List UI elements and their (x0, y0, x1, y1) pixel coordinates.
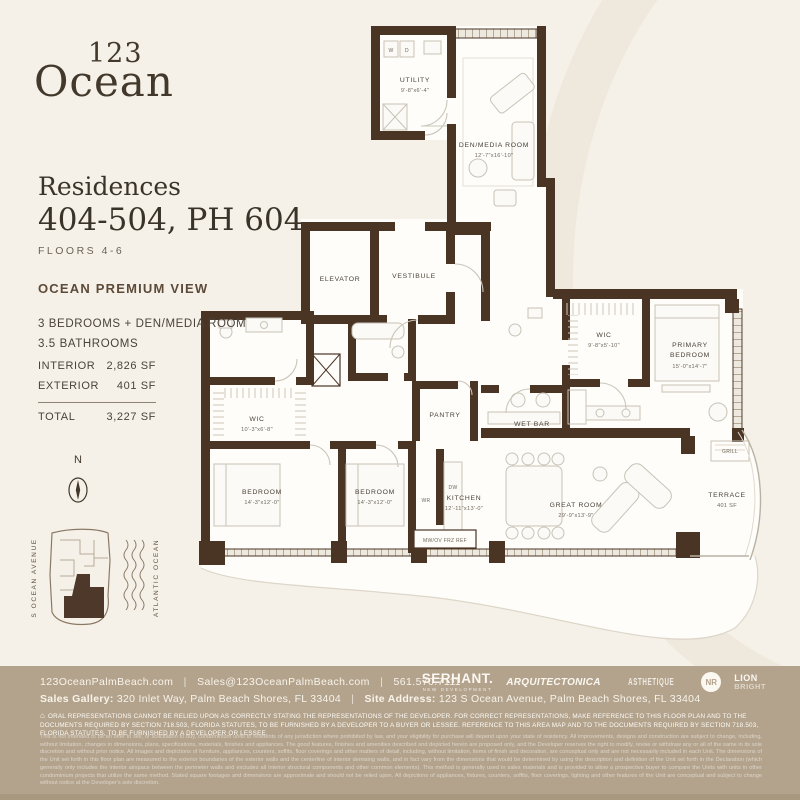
room-label-elevator: ELEVATOR (320, 276, 361, 283)
view-type-label: OCEAN PREMIUM VIEW (38, 281, 208, 296)
serhant-logo: SERHANT. NEW DEVELOPMENT (422, 672, 494, 692)
room-label-bedroom1: BEDROOM (242, 489, 282, 496)
site-map-street-label: S OCEAN AVENUE (31, 538, 38, 617)
partner-logos: SERHANT. NEW DEVELOPMENT ARQUITECTONICA … (422, 672, 766, 692)
footer-contact-line: 123OceanPalmBeach.com | Sales@123OceanPa… (40, 676, 461, 688)
footer: 123OceanPalmBeach.com | Sales@123OceanPa… (0, 666, 800, 800)
floors-label: FLOORS 4-6 (38, 245, 303, 257)
label-wr: WR (422, 498, 431, 504)
room-dims-wic-primary: 9'-8"x5'-10" (588, 343, 620, 349)
feature-bedrooms: 3 BEDROOMS + DEN/MEDIA ROOM (38, 314, 246, 334)
room-dims-utility: 9'-8"x6'-4" (401, 88, 429, 94)
ocean-waves-icon (124, 540, 144, 610)
room-label-great-room: GREAT ROOM (550, 502, 603, 509)
table-row: INTERIOR 2,826 SF (38, 360, 156, 372)
equal-housing-icon: ⌂ (40, 711, 45, 720)
sales-gallery-value: 320 Inlet Way, Palm Beach Shores, FL 334… (117, 693, 341, 705)
site-map-ocean-label: ATLANTIC OCEAN (153, 539, 160, 617)
room-label-primary-2: BEDROOM (670, 352, 710, 359)
feature-bathrooms: 3.5 BATHROOMS (38, 334, 246, 354)
area-value-exterior: 401 SF (117, 380, 156, 392)
label-appliance-row: MW/OV FRZ REF (423, 538, 467, 544)
label-dryer: D (405, 48, 409, 54)
room-label-primary-1: PRIMARY (672, 342, 708, 349)
room-label-pantry: PANTRY (429, 412, 460, 419)
residences-label: Residences (38, 172, 303, 201)
room-dims-primary: 15'-0"x14'-7" (672, 364, 707, 370)
site-address-value: 123 S Ocean Avenue, Palm Beach Shores, F… (439, 693, 701, 705)
area-value-interior: 2,826 SF (107, 360, 156, 372)
room-label-terrace: TERRACE (708, 492, 745, 499)
room-dims-wic-left: 10'-3"x6'-8" (241, 427, 273, 433)
sales-gallery-label: Sales Gallery: (40, 693, 114, 705)
room-dims-kitchen: 12'-11"x13'-0" (445, 506, 483, 512)
separator: | (351, 693, 354, 705)
room-label-den: DEN/MEDIA ROOM (459, 142, 529, 149)
serhant-subtext: NEW DEVELOPMENT (422, 688, 494, 693)
room-label-wet-bar: WET BAR (514, 421, 550, 428)
separator: | (184, 676, 187, 688)
area-table: INTERIOR 2,826 SF EXTERIOR 401 SF TOTAL … (38, 360, 156, 431)
table-row-total: TOTAL 3,227 SF (38, 402, 156, 423)
site-address-label: Site Address: (364, 693, 435, 705)
features-block: 3 BEDROOMS + DEN/MEDIA ROOM 3.5 BATHROOM… (38, 314, 246, 354)
room-label-utility: UTILITY (400, 77, 430, 84)
label-grill: GRILL (722, 449, 738, 455)
room-dims-terrace: 401 SF (717, 503, 737, 509)
area-value-total: 3,227 SF (107, 411, 156, 423)
svg-text:N: N (74, 454, 82, 466)
label-dishwasher: DW (449, 485, 458, 491)
legal-fine-print: This is not intended to be an offer to s… (40, 734, 762, 788)
table-row: EXTERIOR 401 SF (38, 380, 156, 392)
footer-email-link[interactable]: Sales@123OceanPalmBeach.com (197, 676, 370, 688)
page-title-units: 404-504, PH 604 (38, 202, 303, 238)
compass-icon: N (69, 454, 87, 502)
room-label-vestibule: VESTIBULE (392, 273, 436, 280)
label-washer: W (388, 48, 393, 54)
room-label-bedroom2: BEDROOM (355, 489, 395, 496)
room-dims-bedroom1: 14'-3"x12'-0" (244, 500, 279, 506)
room-dims-den: 12'-7"x16'-10" (475, 153, 514, 159)
site-map-unit-highlight (64, 574, 104, 618)
room-label-kitchen: KITCHEN (447, 495, 482, 502)
room-dims-bedroom2: 14'-3"x12'-0" (357, 500, 392, 506)
asthetique-logo: ASTHETIQUE (628, 677, 674, 688)
room-dims-great-room: 29'-9"x13'-9" (558, 513, 593, 519)
arquitectonica-logo: ARQUITECTONICA (506, 677, 601, 688)
area-label-interior: INTERIOR (38, 360, 95, 372)
serhant-wordmark: SERHANT. (422, 672, 494, 686)
brand-logo: 123 Ocean (34, 40, 174, 103)
area-label-exterior: EXTERIOR (38, 380, 99, 392)
room-label-wic-primary: WIC (596, 332, 611, 339)
title-block: Residences 404-504, PH 604 FLOORS 4-6 (38, 172, 303, 257)
footer-website-link[interactable]: 123OceanPalmBeach.com (40, 676, 173, 688)
brand-logo-ocean: Ocean (34, 61, 174, 103)
site-map: S OCEAN AVENUE ATLANTIC OCEAN (31, 529, 160, 624)
lion-logo: LION BRIGHT (734, 674, 766, 691)
area-label-total: TOTAL (38, 411, 75, 423)
room-label-wic-left: WIC (249, 416, 264, 423)
footer-address-line: Sales Gallery: 320 Inlet Way, Palm Beach… (40, 693, 700, 705)
separator: | (380, 676, 383, 688)
lion-line2: BRIGHT (734, 683, 766, 691)
nr-badge-icon: NR (701, 672, 721, 692)
